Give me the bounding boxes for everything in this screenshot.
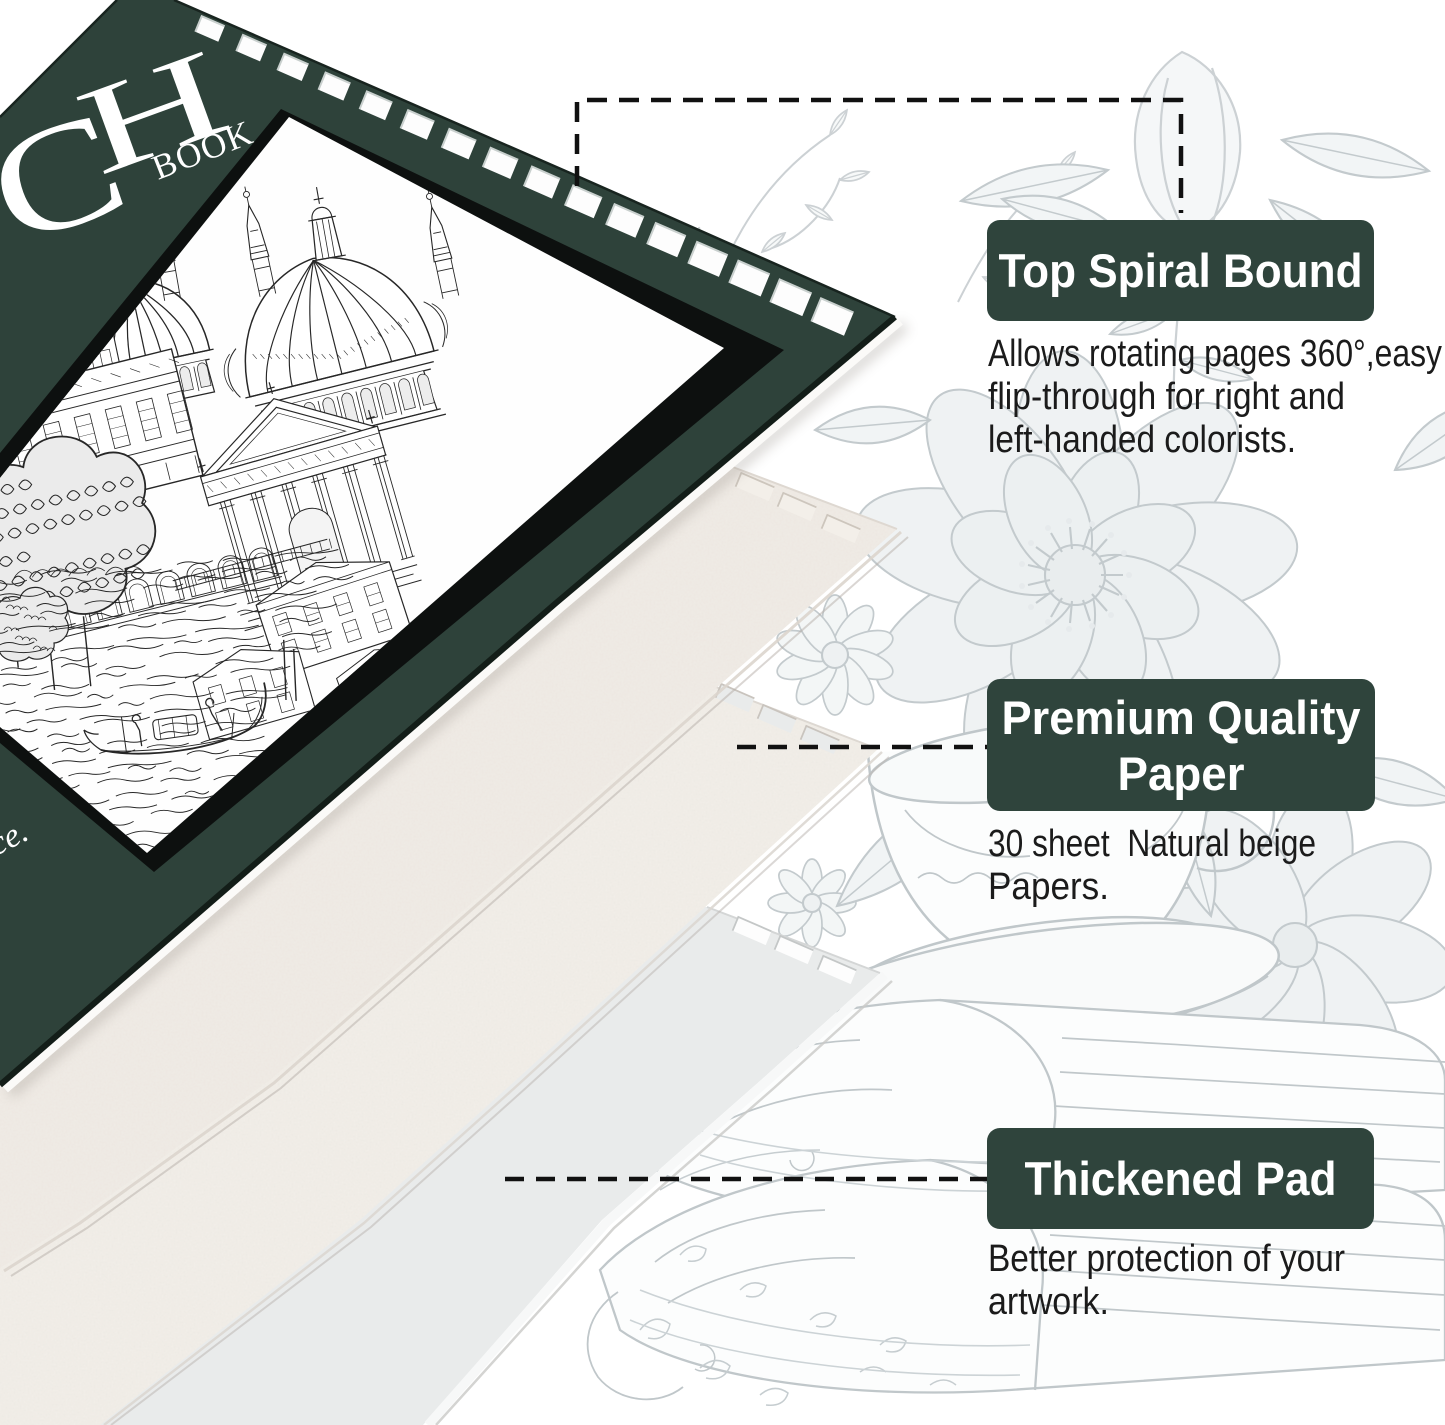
svg-text:Papers.: Papers.	[988, 866, 1109, 908]
svg-text:Better protection of your: Better protection of your	[988, 1238, 1345, 1280]
svg-text:Allows rotating pages 360°,eas: Allows rotating pages 360°,easy	[988, 333, 1442, 375]
svg-text:artwork.: artwork.	[988, 1281, 1109, 1323]
svg-text:Paper: Paper	[1118, 747, 1245, 800]
svg-text:Thickened Pad: Thickened Pad	[1025, 1152, 1337, 1205]
svg-text:30 sheet Natural beige: 30 sheet Natural beige	[988, 823, 1316, 865]
svg-text:flip-through for right and: flip-through for right and	[988, 376, 1345, 418]
svg-text:Premium Quality: Premium Quality	[1002, 691, 1361, 744]
svg-text:left-handed colorists.: left-handed colorists.	[988, 419, 1296, 461]
svg-text:Top Spiral Bound: Top Spiral Bound	[999, 244, 1363, 297]
